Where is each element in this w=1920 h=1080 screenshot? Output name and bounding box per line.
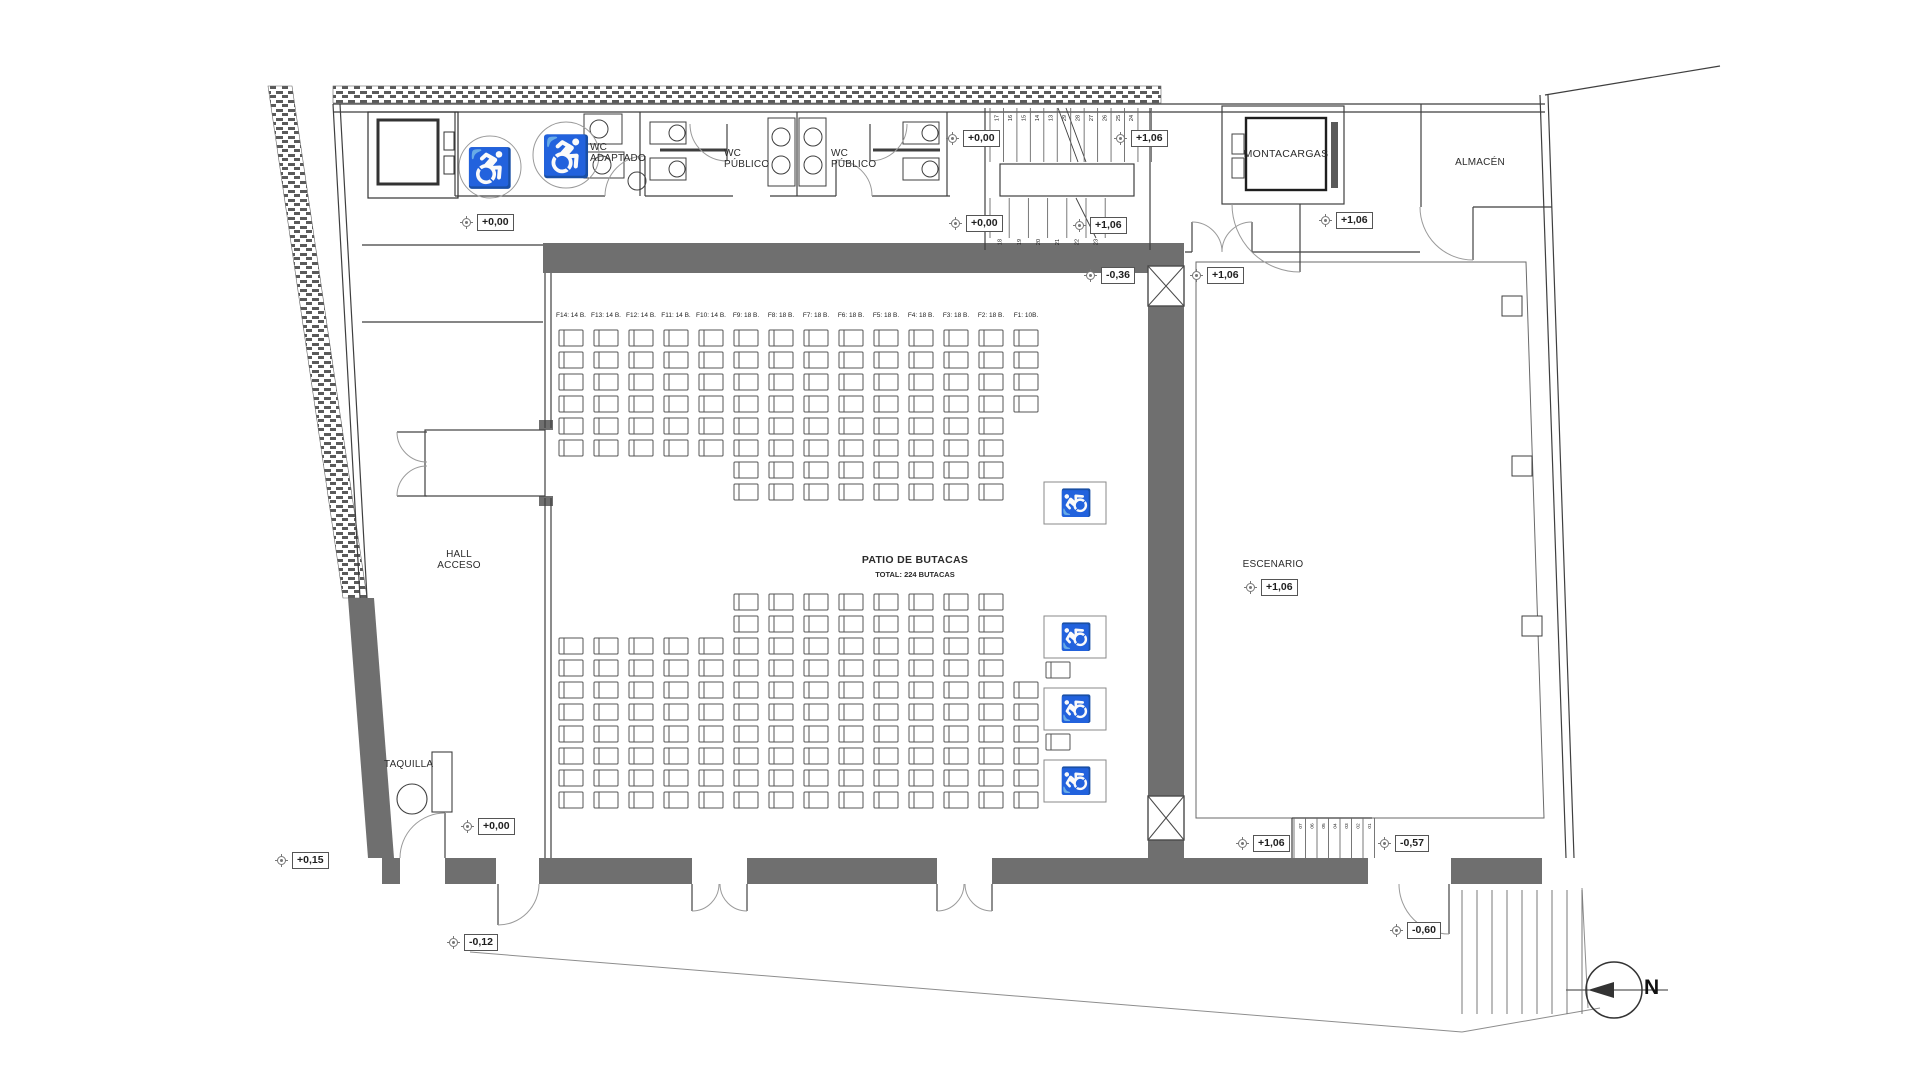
- row-label: F13: 14 B.: [591, 312, 621, 319]
- seat: [909, 682, 933, 698]
- seat: [804, 638, 828, 654]
- seat: [979, 352, 1003, 368]
- seat: [559, 726, 583, 742]
- level-marker-montacargas-corridor: +1,06: [1319, 212, 1373, 229]
- stair-step-number: 06: [1309, 823, 1315, 829]
- seat: [944, 594, 968, 610]
- seat: [909, 704, 933, 720]
- stair-step-number: 26: [1102, 115, 1108, 121]
- stair-step-number: 04: [1332, 823, 1338, 829]
- stair-step-number: 24: [1129, 115, 1135, 121]
- seat: [979, 330, 1003, 346]
- seat: [664, 748, 688, 764]
- seat: [559, 440, 583, 456]
- seat: [839, 726, 863, 742]
- level-target-icon: [460, 216, 473, 229]
- seat: [909, 418, 933, 434]
- seat: [874, 638, 898, 654]
- seat: [594, 330, 618, 346]
- level-marker-stair-bottom-right: +1,06: [1073, 217, 1127, 234]
- level-marker-exterior-door-right: -0,60: [1390, 922, 1441, 939]
- seat: [629, 352, 653, 368]
- seat: [769, 704, 793, 720]
- seat: [874, 726, 898, 742]
- seat: [839, 352, 863, 368]
- seat: [944, 660, 968, 676]
- seat: [874, 704, 898, 720]
- seat: [769, 418, 793, 434]
- seat: [629, 638, 653, 654]
- level-target-icon: [946, 132, 959, 145]
- seat: [979, 440, 1003, 456]
- seat: [839, 704, 863, 720]
- seat: [1014, 704, 1038, 720]
- seat: [629, 418, 653, 434]
- seat: [734, 484, 758, 500]
- room-label-escenario: ESCENARIO: [1221, 559, 1325, 570]
- seat: [664, 704, 688, 720]
- level-marker-auditorium-floor: -0,36: [1084, 267, 1135, 284]
- level-target-icon: [275, 854, 288, 867]
- seat: [909, 374, 933, 390]
- seat: [804, 396, 828, 412]
- seat: [979, 748, 1003, 764]
- seat: [629, 726, 653, 742]
- seat: [664, 440, 688, 456]
- seat: [979, 704, 1003, 720]
- stair-step-number: 28: [1075, 115, 1081, 121]
- seat: [734, 770, 758, 786]
- seat-row-labels: F14: 14 B.F13: 14 B.F12: 14 B.F11: 14 B.…: [556, 312, 1038, 319]
- seat: [874, 792, 898, 808]
- seat: [839, 330, 863, 346]
- seat: [699, 418, 723, 434]
- seat: [769, 484, 793, 500]
- seat: [699, 726, 723, 742]
- seat: [559, 330, 583, 346]
- seat: [664, 660, 688, 676]
- seat: [839, 396, 863, 412]
- row-label: F5: 18 B.: [873, 312, 900, 319]
- seat: [594, 396, 618, 412]
- seat: [944, 616, 968, 632]
- seat: [594, 770, 618, 786]
- seat: [769, 792, 793, 808]
- seat: [804, 660, 828, 676]
- seat: [664, 352, 688, 368]
- seat: [699, 792, 723, 808]
- seat: [699, 352, 723, 368]
- seat: [944, 330, 968, 346]
- level-marker-stage-side-top: +1,06: [1190, 267, 1244, 284]
- level-target-icon: [447, 936, 460, 949]
- seat: [664, 726, 688, 742]
- level-marker-stage-center: +1,06: [1244, 579, 1298, 596]
- seat: [839, 638, 863, 654]
- wheelchair-icon: ♿: [466, 146, 513, 190]
- seat: [594, 352, 618, 368]
- seat: [804, 374, 828, 390]
- level-marker-corridor-left: +0,00: [460, 214, 514, 231]
- seat: [734, 638, 758, 654]
- seat: [874, 330, 898, 346]
- seat: [944, 440, 968, 456]
- seat: [909, 330, 933, 346]
- seat: [1014, 682, 1038, 698]
- seat: [559, 704, 583, 720]
- seat: [769, 396, 793, 412]
- seat: [909, 396, 933, 412]
- seat: [734, 660, 758, 676]
- seat: [769, 374, 793, 390]
- seat: [769, 638, 793, 654]
- seat: [909, 792, 933, 808]
- seat: [909, 484, 933, 500]
- seat: [559, 396, 583, 412]
- seat: [909, 748, 933, 764]
- seat: [594, 418, 618, 434]
- seat: [909, 462, 933, 478]
- seat: [699, 704, 723, 720]
- seat: [804, 748, 828, 764]
- seat: [769, 616, 793, 632]
- seat: [594, 638, 618, 654]
- row-label: F6: 18 B.: [838, 312, 865, 319]
- seat: [594, 440, 618, 456]
- seat: [944, 352, 968, 368]
- seat: [944, 726, 968, 742]
- seat: [979, 594, 1003, 610]
- seat: [839, 660, 863, 676]
- seat: [839, 770, 863, 786]
- seat: [734, 352, 758, 368]
- seat: [979, 770, 1003, 786]
- seat: [979, 374, 1003, 390]
- seat: [804, 440, 828, 456]
- seat: [769, 748, 793, 764]
- seat: [979, 638, 1003, 654]
- seat: [629, 440, 653, 456]
- seat: [664, 374, 688, 390]
- level-target-icon: [949, 217, 962, 230]
- seat: [769, 770, 793, 786]
- seat: [979, 616, 1003, 632]
- seat: [804, 484, 828, 500]
- seat: [559, 638, 583, 654]
- seat: [804, 352, 828, 368]
- wheelchair-spaces: ♿♿♿♿: [1044, 482, 1106, 802]
- stair-step-number: 25: [1116, 115, 1122, 121]
- level-marker-exterior-door-left: -0,12: [447, 934, 498, 951]
- seat: [629, 770, 653, 786]
- seat: [874, 462, 898, 478]
- level-marker-stair-top-left: +0,00: [946, 130, 1000, 147]
- left-lower-wall: [348, 598, 394, 858]
- level-target-icon: [1084, 269, 1097, 282]
- seat: [944, 792, 968, 808]
- floor-plan-drawing: ♿ ♿ 1716151413292827262524181: [0, 0, 1920, 1080]
- elevator-plan: [368, 112, 458, 198]
- seat: [979, 726, 1003, 742]
- seat: [874, 770, 898, 786]
- stair-step-number: 21: [1055, 239, 1061, 245]
- seat: [629, 704, 653, 720]
- seat: [629, 330, 653, 346]
- seat: [594, 704, 618, 720]
- seat: [874, 616, 898, 632]
- seat: [944, 704, 968, 720]
- seat: [909, 660, 933, 676]
- stair-step-number: 02: [1355, 823, 1361, 829]
- seat: [804, 594, 828, 610]
- seat: [1014, 792, 1038, 808]
- seat: [804, 462, 828, 478]
- seat: [734, 792, 758, 808]
- stage-separation-wall: [1148, 243, 1184, 868]
- stair-step-number: 27: [1089, 115, 1095, 121]
- stair-step-number: 07: [1298, 823, 1304, 829]
- seat: [699, 638, 723, 654]
- seat: [874, 682, 898, 698]
- row-label: F12: 14 B.: [626, 312, 656, 319]
- level-target-icon: [1378, 837, 1391, 850]
- seat: [909, 440, 933, 456]
- seat: [594, 726, 618, 742]
- seat: [559, 352, 583, 368]
- seat: [734, 616, 758, 632]
- stair-step-number: 18: [998, 239, 1004, 245]
- seat: [874, 440, 898, 456]
- seat: [629, 396, 653, 412]
- stair-step-number: 03: [1344, 823, 1350, 829]
- seat: [699, 396, 723, 412]
- level-target-icon: [1073, 219, 1086, 232]
- seat: [839, 440, 863, 456]
- seat: [1046, 662, 1070, 678]
- seat: [839, 616, 863, 632]
- stair-step-number: 16: [1008, 115, 1014, 121]
- level-marker-hall-floor: +0,00: [461, 818, 515, 835]
- seat: [594, 682, 618, 698]
- seat: [559, 660, 583, 676]
- seat: [734, 704, 758, 720]
- seat: [769, 440, 793, 456]
- stair-step-number: 15: [1022, 115, 1028, 121]
- seat: [559, 770, 583, 786]
- seat: [804, 726, 828, 742]
- seat: [944, 682, 968, 698]
- room-label-wc-publico-2: WC PÚBLICO: [831, 148, 876, 170]
- seat: [944, 770, 968, 786]
- seat: [839, 792, 863, 808]
- level-target-icon: [1190, 269, 1203, 282]
- stair-step-number: 19: [1017, 239, 1023, 245]
- row-label: F14: 14 B.: [556, 312, 586, 319]
- seat: [944, 638, 968, 654]
- room-label-taquilla: TAQUILLA: [384, 759, 433, 770]
- row-label: F8: 18 B.: [768, 312, 795, 319]
- seat: [769, 682, 793, 698]
- seat: [874, 660, 898, 676]
- seat: [1014, 770, 1038, 786]
- seat: [839, 682, 863, 698]
- seat: [769, 352, 793, 368]
- seat: [734, 374, 758, 390]
- seat: [734, 330, 758, 346]
- seat: [629, 682, 653, 698]
- seat: [944, 484, 968, 500]
- seat: [839, 418, 863, 434]
- north-label: N: [1644, 976, 1659, 1000]
- room-label-patio-title: PATIO DE BUTACAS: [807, 555, 1023, 567]
- seat: [979, 462, 1003, 478]
- seat: [734, 396, 758, 412]
- wheelchair-icon: ♿: [1061, 765, 1091, 797]
- seat: [1014, 748, 1038, 764]
- seat: [734, 440, 758, 456]
- seat: [699, 660, 723, 676]
- seat: [944, 418, 968, 434]
- seat: [769, 330, 793, 346]
- seat: [804, 616, 828, 632]
- auditorium-top-wall: [543, 243, 1148, 273]
- room-label-wc-publico-1: WC PÚBLICO: [724, 148, 769, 170]
- stair-step-number: 22: [1074, 239, 1080, 245]
- row-label: F9: 18 B.: [733, 312, 760, 319]
- seat: [559, 748, 583, 764]
- seat: [804, 770, 828, 786]
- row-label: F1: 10B.: [1014, 312, 1039, 319]
- seat: [594, 792, 618, 808]
- wheelchair-icon: ♿: [1061, 487, 1091, 519]
- seat: [699, 330, 723, 346]
- seat: [699, 770, 723, 786]
- seat: [979, 484, 1003, 500]
- stair-step-number: 14: [1035, 115, 1041, 121]
- seat: [804, 682, 828, 698]
- seat: [769, 462, 793, 478]
- seat: [769, 594, 793, 610]
- seat: [909, 726, 933, 742]
- seat: [559, 792, 583, 808]
- wheelchair-icon: ♿: [1061, 693, 1091, 725]
- seat: [874, 396, 898, 412]
- seat: [909, 638, 933, 654]
- seat: [979, 396, 1003, 412]
- seat: [804, 704, 828, 720]
- stair-step-number: 17: [995, 115, 1001, 121]
- seat: [629, 374, 653, 390]
- wheelchair-space: ♿: [1044, 482, 1106, 524]
- seat: [804, 330, 828, 346]
- seat: [629, 792, 653, 808]
- seat: [664, 792, 688, 808]
- seat: [909, 770, 933, 786]
- wheelchair-space: ♿: [1044, 616, 1106, 658]
- seat: [664, 330, 688, 346]
- seating-grid: [559, 330, 1070, 808]
- seat: [1014, 330, 1038, 346]
- row-label: F3: 18 B.: [943, 312, 970, 319]
- row-label: F4: 18 B.: [908, 312, 935, 319]
- seat: [874, 374, 898, 390]
- seat: [734, 418, 758, 434]
- seat: [699, 440, 723, 456]
- seat: [979, 418, 1003, 434]
- level-target-icon: [1244, 581, 1257, 594]
- seat: [839, 484, 863, 500]
- seat: [1014, 352, 1038, 368]
- wheelchair-circles: ♿ ♿: [459, 122, 599, 198]
- level-marker-stair-top-right: +1,06: [1114, 130, 1168, 147]
- level-target-icon: [1319, 214, 1332, 227]
- seat: [699, 374, 723, 390]
- level-marker-stage-stair-left: +1,06: [1236, 835, 1290, 852]
- row-label: F11: 14 B.: [661, 312, 691, 319]
- seat: [874, 748, 898, 764]
- seat: [979, 792, 1003, 808]
- row-label: F7: 18 B.: [803, 312, 830, 319]
- seat: [979, 682, 1003, 698]
- seat: [839, 594, 863, 610]
- level-target-icon: [1114, 132, 1127, 145]
- wheelchair-space: ♿: [1044, 760, 1106, 802]
- seat: [664, 770, 688, 786]
- stair-step-number: 01: [1367, 823, 1373, 829]
- seat: [1014, 374, 1038, 390]
- level-target-icon: [461, 820, 474, 833]
- seat: [664, 396, 688, 412]
- row-label: F10: 14 B.: [696, 312, 726, 319]
- room-label-patio-subtitle: TOTAL: 224 BUTACAS: [807, 571, 1023, 579]
- seat: [769, 660, 793, 676]
- seat: [699, 682, 723, 698]
- seat: [1014, 726, 1038, 742]
- room-label-wc-adaptado: WC ADAPTADO: [590, 142, 646, 164]
- level-target-icon: [1236, 837, 1249, 850]
- seat: [874, 484, 898, 500]
- seat: [734, 594, 758, 610]
- stair-step-number: 29: [1062, 115, 1068, 121]
- wheelchair-icon: ♿: [1061, 621, 1091, 653]
- seat: [559, 374, 583, 390]
- seat: [559, 418, 583, 434]
- seat: [734, 726, 758, 742]
- seat: [944, 374, 968, 390]
- seat: [594, 748, 618, 764]
- room-label-almacen: ALMACÉN: [1428, 157, 1532, 168]
- seat: [1046, 734, 1070, 750]
- seat: [874, 418, 898, 434]
- level-target-icon: [1390, 924, 1403, 937]
- seat: [629, 748, 653, 764]
- wheelchair-icon: ♿: [541, 133, 591, 179]
- seat: [804, 418, 828, 434]
- seat: [629, 660, 653, 676]
- seat: [944, 396, 968, 412]
- seat: [909, 594, 933, 610]
- seat: [909, 616, 933, 632]
- seat: [1014, 396, 1038, 412]
- seat: [874, 352, 898, 368]
- room-label-hall-acceso: HALL ACCESO: [407, 549, 511, 571]
- level-marker-stair-bottom-left: +0,00: [949, 215, 1003, 232]
- seat: [699, 748, 723, 764]
- stair-step-number: 20: [1036, 239, 1042, 245]
- room-label-montacargas: MONTACARGAS: [1232, 149, 1340, 161]
- seat: [769, 726, 793, 742]
- seat: [979, 660, 1003, 676]
